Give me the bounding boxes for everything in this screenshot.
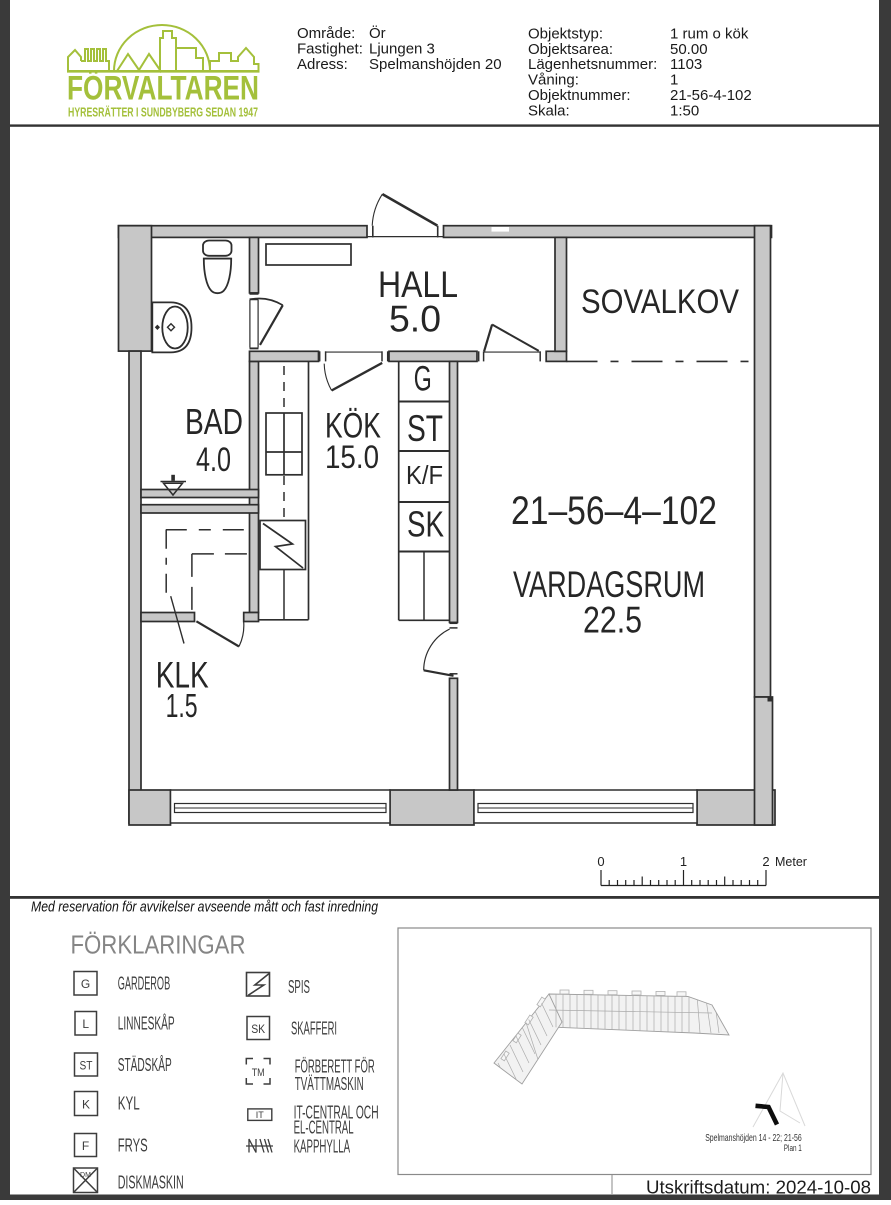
svg-text:1:50: 1:50: [670, 102, 699, 119]
svg-text:SKAFFERI: SKAFFERI: [291, 1019, 337, 1039]
svg-text:FRYS: FRYS: [118, 1136, 148, 1156]
svg-text:HYRESRÄTTER I SUNDBYBERG SEDAN: HYRESRÄTTER I SUNDBYBERG SEDAN 1947: [68, 105, 258, 120]
svg-text:1: 1: [680, 854, 687, 869]
svg-text:GARDEROB: GARDEROB: [118, 974, 171, 994]
svg-text:L: L: [82, 1017, 89, 1031]
svg-text:Spelmanshöjden 20: Spelmanshöjden 20: [369, 56, 502, 73]
svg-text:22.5: 22.5: [583, 600, 642, 641]
svg-text:FÖRKLARINGAR: FÖRKLARINGAR: [71, 932, 246, 960]
svg-text:G: G: [81, 977, 90, 991]
svg-text:KAPPHYLLA: KAPPHYLLA: [294, 1137, 351, 1157]
svg-text:BAD: BAD: [185, 401, 243, 442]
svg-text:STÄDSKÅP: STÄDSKÅP: [118, 1055, 172, 1075]
svg-text:TM: TM: [252, 1067, 265, 1079]
svg-text:Plan 1: Plan 1: [784, 1143, 802, 1154]
svg-text:K/F: K/F: [406, 460, 443, 490]
svg-text:2: 2: [762, 854, 769, 869]
svg-text:K: K: [82, 1098, 90, 1112]
svg-text:5.0: 5.0: [389, 299, 441, 340]
svg-text:Meter: Meter: [775, 855, 807, 869]
svg-text:EL-CENTRAL: EL-CENTRAL: [294, 1118, 354, 1138]
svg-text:DM: DM: [80, 1172, 91, 1179]
svg-text:LINNESKÅP: LINNESKÅP: [118, 1014, 175, 1034]
svg-text:SOVALKOV: SOVALKOV: [581, 283, 739, 321]
svg-text:0: 0: [597, 854, 604, 869]
svg-text:SPIS: SPIS: [288, 977, 310, 997]
svg-text:KYL: KYL: [118, 1094, 140, 1114]
svg-text:15.0: 15.0: [325, 439, 379, 475]
svg-text:ST: ST: [407, 408, 443, 449]
svg-text:DISKMASKIN: DISKMASKIN: [118, 1173, 184, 1193]
svg-text:G: G: [414, 360, 432, 399]
svg-text:Skala:: Skala:: [528, 102, 570, 119]
svg-text:FÖRVALTAREN: FÖRVALTAREN: [67, 70, 259, 108]
svg-text:ST: ST: [80, 1059, 94, 1073]
svg-text:21–56–4–102: 21–56–4–102: [511, 489, 717, 533]
svg-text:TVÄTTMASKIN: TVÄTTMASKIN: [295, 1074, 364, 1094]
svg-text:4.0: 4.0: [196, 441, 231, 479]
svg-text:SK: SK: [251, 1022, 265, 1036]
svg-text:Adress:: Adress:: [297, 56, 348, 73]
svg-text:F: F: [82, 1139, 89, 1153]
svg-text:1.5: 1.5: [166, 687, 198, 724]
svg-text:Med reservation för avvikelser: Med reservation för avvikelser avseende …: [31, 900, 378, 916]
svg-text:IT: IT: [256, 1110, 265, 1120]
svg-text:Ör: Ör: [369, 24, 386, 42]
svg-text:Utskriftsdatum: 2024-10-08: Utskriftsdatum: 2024-10-08: [646, 1178, 871, 1198]
svg-text:SK: SK: [407, 504, 444, 545]
